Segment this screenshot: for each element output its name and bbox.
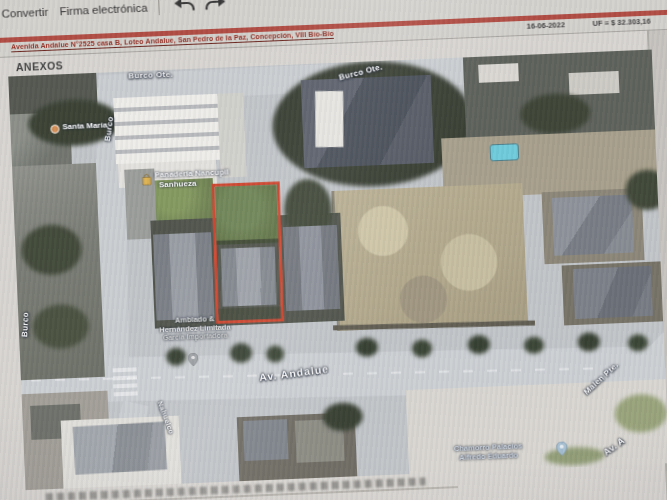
poi-panaderia-line2: Sanhueza: [159, 179, 197, 190]
satellite-map-image: Burco Ote. Burco Ote. Burco Burco Av. An…: [8, 50, 667, 491]
crosswalk: [113, 367, 138, 398]
house-roof-right: [552, 195, 634, 256]
white-roof: [478, 63, 519, 83]
white-roof: [569, 71, 620, 95]
section-title: ANEXOS: [16, 59, 64, 73]
uf-value-label: UF = $ 32.303,16: [592, 17, 650, 28]
house-roof-neighbor: [283, 225, 340, 311]
parcel-house-roof: [221, 247, 277, 307]
street-label-burco-ote-1: Burco Ote.: [128, 70, 173, 81]
gray-pin-icon: [188, 353, 199, 366]
house-roof: [243, 419, 289, 461]
shopping-bag-icon: [141, 174, 151, 186]
document-page: ANEXOS: [0, 29, 667, 500]
blue-pin-icon: [556, 441, 568, 455]
vacant-lot: [331, 183, 528, 331]
toolbar-divider: [158, 0, 160, 15]
undo-icon[interactable]: [172, 0, 197, 15]
swimming-pool: [490, 143, 520, 161]
parcel-hedge: [216, 239, 278, 245]
carport-roofs: [113, 94, 220, 164]
convert-button[interactable]: Convertir: [1, 6, 48, 20]
parcel-lawn: [215, 185, 279, 243]
house-roof-bottom: [73, 421, 168, 474]
trees: [322, 402, 363, 432]
redo-icon[interactable]: [203, 0, 228, 13]
date-label: 16-06-2022: [526, 20, 565, 31]
poi-ambiado: Ambiado & Hernández Limitada García Impo…: [124, 312, 265, 343]
street-label-burco-2: Burco: [20, 312, 30, 338]
signature-button[interactable]: Firma electrónica: [59, 2, 148, 18]
poi-panaderia-line1: Panadería Nancupil: [154, 167, 229, 179]
house-roof-neighbor: [153, 232, 215, 320]
driveway: [217, 93, 246, 178]
white-roof: [315, 91, 343, 147]
parcel-outline: [212, 182, 284, 324]
poi-santa-maria: Santa María: [62, 120, 107, 131]
document-viewer: Convertir Firma electrónica Avenida Anda…: [0, 0, 667, 500]
house-roof-right: [573, 266, 653, 319]
photo-of-screen: Convertir Firma electrónica Avenida Anda…: [0, 0, 667, 500]
